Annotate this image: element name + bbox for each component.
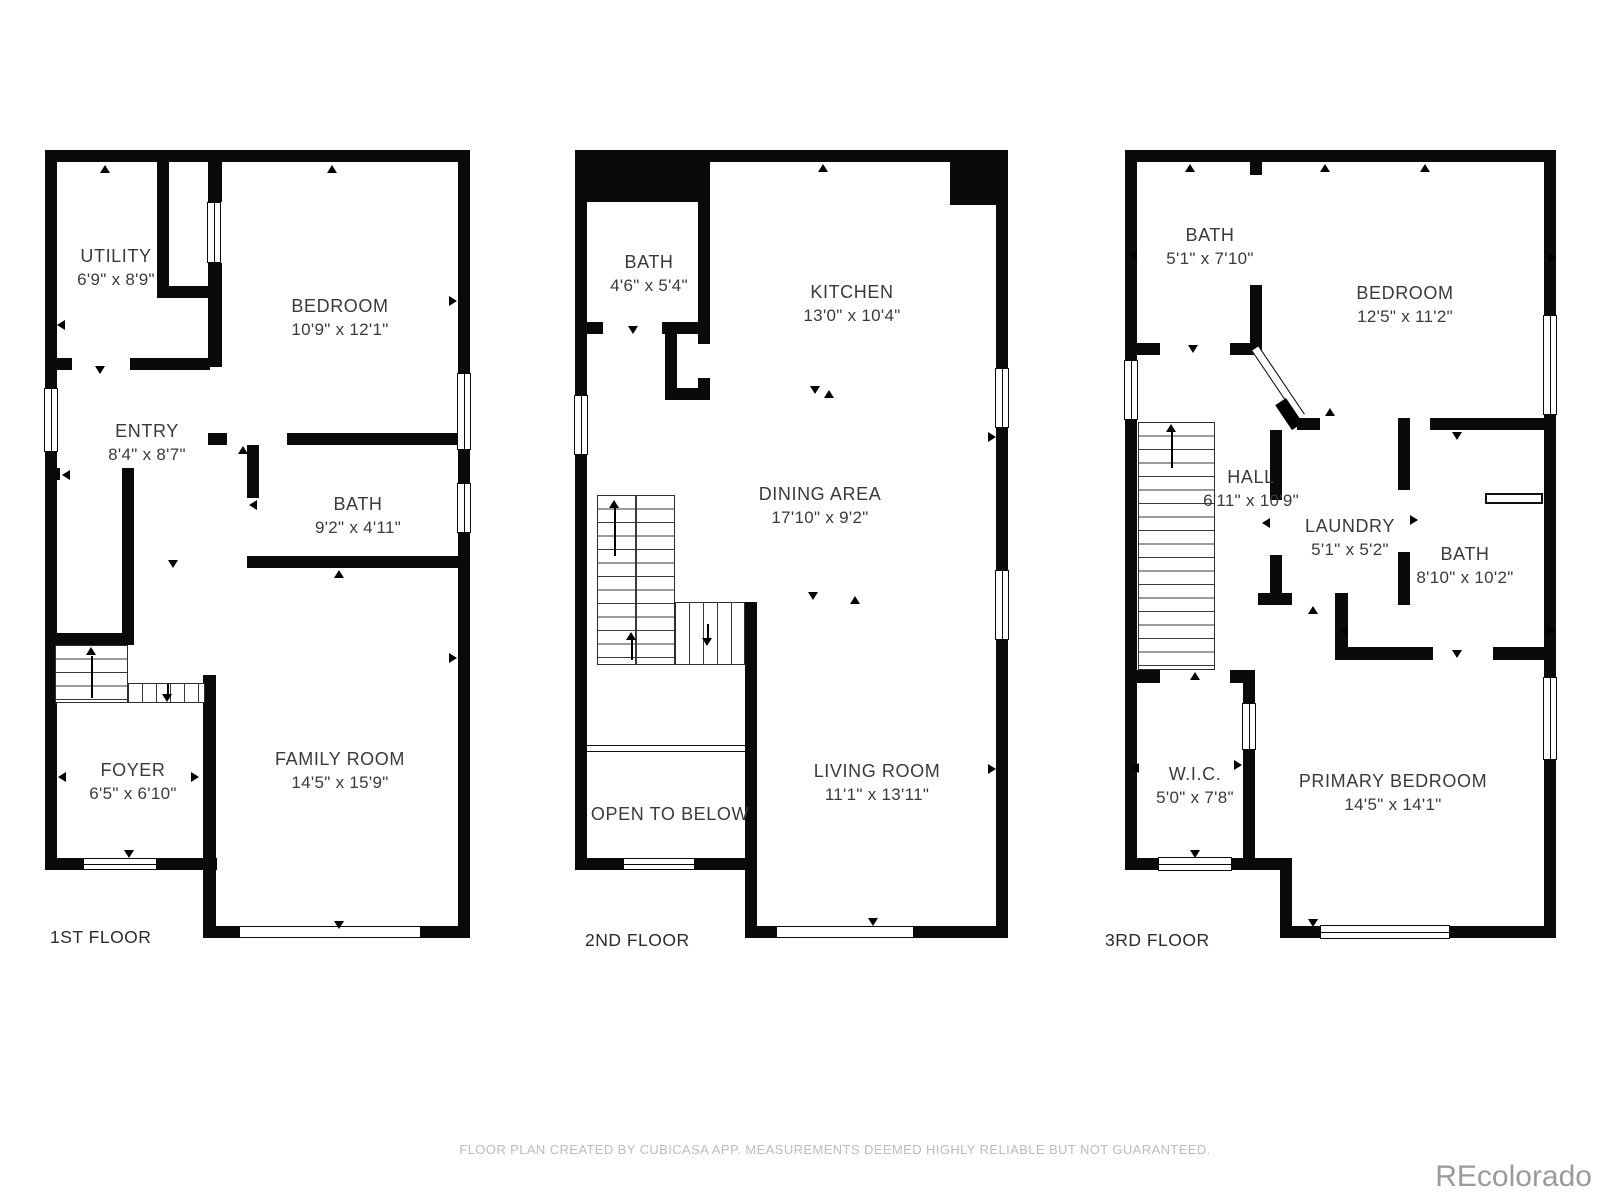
wall <box>1398 552 1410 605</box>
door-swing-icon <box>1131 763 1139 773</box>
room-name: HALL <box>1203 467 1299 488</box>
room-name: OPEN TO BELOW <box>591 804 749 825</box>
door-swing-icon <box>988 432 996 442</box>
wall <box>1398 418 1410 490</box>
door-swing-icon <box>824 390 834 398</box>
wall <box>45 358 72 370</box>
door-swing-icon <box>1410 515 1418 525</box>
room-dims: 6'9" x 8'9" <box>77 270 155 290</box>
door-swing-icon <box>58 772 66 782</box>
room-label-entry: ENTRY 8'4" x 8'7" <box>108 421 186 465</box>
wall <box>45 633 134 645</box>
room-label-living-room: LIVING ROOM 11'1" x 13'11" <box>814 761 941 805</box>
room-dims: 8'4" x 8'7" <box>108 445 186 465</box>
footer-disclaimer: FLOOR PLAN CREATED BY CUBICASA APP. MEAS… <box>0 1142 1600 1157</box>
stair-up-arrow-icon <box>609 500 619 508</box>
room-dims: 17'10" x 9'2" <box>759 508 882 528</box>
room-label-wic: W.I.C. 5'0" x 7'8" <box>1156 764 1234 808</box>
wall <box>575 162 587 395</box>
room-name: UTILITY <box>77 246 155 267</box>
window <box>457 373 471 450</box>
wall <box>698 378 710 400</box>
floor-plan-canvas: UTILITY 6'9" x 8'9" BEDROOM 10'9" x 12'1… <box>0 0 1600 1200</box>
door-swing-icon <box>850 596 860 604</box>
wall <box>1348 647 1433 660</box>
door-swing-icon <box>249 500 257 510</box>
room-dims: 14'5" x 14'1" <box>1299 795 1487 815</box>
room-name: LIVING ROOM <box>814 761 941 782</box>
wall <box>1125 858 1160 870</box>
door-swing-icon <box>1234 760 1242 770</box>
stair-arrow-shaft <box>91 656 93 698</box>
wall <box>1125 162 1137 360</box>
door-swing-icon <box>810 386 820 394</box>
wall <box>45 858 83 870</box>
door-swing-icon <box>1262 518 1270 528</box>
wall <box>745 602 757 938</box>
stair-up-arrow-icon <box>626 632 636 640</box>
wall <box>1250 285 1262 343</box>
room-name: LAUNDRY <box>1305 516 1395 537</box>
room-label-kitchen: KITCHEN 13'0" x 10'4" <box>803 282 900 326</box>
wall <box>662 322 710 334</box>
wall <box>1243 750 1255 870</box>
wall <box>745 926 777 938</box>
door-swing-icon <box>1548 253 1556 263</box>
closet-shelf <box>1485 493 1543 504</box>
wall <box>247 556 470 568</box>
window <box>457 483 471 533</box>
wall <box>208 162 222 202</box>
room-label-hall: HALL 6'11" x 10'9" <box>1203 467 1299 511</box>
stair-up-arrow-icon <box>1166 424 1176 432</box>
room-dims: 5'0" x 7'8" <box>1156 788 1234 808</box>
door-swing-icon <box>1190 850 1200 858</box>
door-swing-icon <box>1190 672 1200 680</box>
wall <box>575 455 587 870</box>
wall <box>130 358 210 370</box>
door-swing-icon <box>1188 345 1198 353</box>
wall <box>208 433 227 445</box>
wall <box>1270 555 1282 593</box>
wall <box>1250 162 1262 175</box>
door-swing-icon <box>334 570 344 578</box>
door-swing-icon <box>1547 625 1555 635</box>
room-name: KITCHEN <box>803 282 900 303</box>
door-swing-icon <box>1320 164 1330 172</box>
stair-up-arrow-icon <box>86 647 96 655</box>
room-dims: 13'0" x 10'4" <box>803 306 900 326</box>
window <box>1320 925 1450 939</box>
room-dims: 9'2" x 4'11" <box>315 518 401 538</box>
room-label-foyer: FOYER 6'5" x 6'10" <box>89 760 176 804</box>
room-name: BATH <box>610 252 688 273</box>
wall <box>208 263 222 367</box>
room-name: W.I.C. <box>1156 764 1234 785</box>
wall <box>287 433 470 445</box>
stair-arrow-shaft <box>614 508 616 556</box>
room-name: FOYER <box>89 760 176 781</box>
wall <box>575 858 623 870</box>
room-dims: 6'11" x 10'9" <box>1203 491 1299 511</box>
door-swing-icon <box>628 326 638 334</box>
window <box>1543 677 1557 760</box>
window <box>574 395 588 455</box>
window <box>623 858 695 870</box>
room-label-laundry: LAUNDRY 5'1" x 5'2" <box>1305 516 1395 560</box>
room-name: BATH <box>315 494 401 515</box>
wall <box>458 162 470 373</box>
wall <box>913 926 1008 938</box>
door-swing-icon <box>334 921 344 929</box>
door-swing-icon <box>1340 626 1348 636</box>
room-dims: 8'10" x 10'2" <box>1416 568 1513 588</box>
room-dims: 6'5" x 6'10" <box>89 784 176 804</box>
door-swing-icon <box>1308 919 1318 927</box>
door-swing-icon <box>808 592 818 600</box>
window <box>1124 360 1138 420</box>
wall <box>1125 670 1160 683</box>
wall <box>1125 150 1556 162</box>
wall <box>203 675 216 938</box>
wall <box>122 468 134 645</box>
wall <box>575 150 710 202</box>
window <box>44 388 58 452</box>
floor-label-1st: 1ST FLOOR <box>50 927 151 948</box>
wall <box>698 334 710 344</box>
room-label-bath-2: BATH 8'10" x 10'2" <box>1416 544 1513 588</box>
room-name: PRIMARY BEDROOM <box>1299 771 1487 792</box>
wall <box>1125 343 1160 355</box>
wall <box>458 533 470 938</box>
room-name: ENTRY <box>108 421 186 442</box>
door-swing-icon <box>1185 164 1195 172</box>
floor-label-2nd: 2ND FLOOR <box>585 930 690 951</box>
room-label-open-to-below: OPEN TO BELOW <box>591 804 749 825</box>
wall <box>1450 926 1556 938</box>
door-swing-icon <box>57 320 65 330</box>
room-label-bath: BATH 9'2" x 4'11" <box>315 494 401 538</box>
wall <box>996 640 1008 938</box>
window <box>1158 857 1232 871</box>
staircase-landing-icon <box>675 602 745 665</box>
room-dims: 10'9" x 12'1" <box>291 320 388 340</box>
door-swing-icon <box>868 918 878 926</box>
wall <box>458 450 470 483</box>
window <box>995 368 1009 428</box>
stair-down-arrow-icon <box>162 694 172 702</box>
door-swing-icon <box>100 165 110 173</box>
door-swing-icon <box>818 164 828 172</box>
wall <box>45 468 60 480</box>
wall <box>45 150 470 162</box>
room-label-bedroom: BEDROOM 10'9" x 12'1" <box>291 296 388 340</box>
wall <box>1544 415 1556 677</box>
wall <box>420 926 470 938</box>
door-swing-icon <box>449 653 457 663</box>
window <box>83 858 157 870</box>
room-name: BATH <box>1416 544 1513 565</box>
wall <box>698 162 710 322</box>
stair-down-arrow-icon <box>702 638 712 646</box>
door-opening <box>777 926 913 938</box>
room-name: FAMILY ROOM <box>275 749 405 770</box>
room-name: BEDROOM <box>1356 283 1453 304</box>
wall <box>575 322 603 334</box>
wall <box>247 445 259 498</box>
room-label-dining-area: DINING AREA 17'10" x 9'2" <box>759 484 882 528</box>
window <box>207 202 221 263</box>
door-swing-icon <box>1129 250 1137 260</box>
wall <box>1430 418 1556 430</box>
room-label-utility: UTILITY 6'9" x 8'9" <box>77 246 155 290</box>
door-opening <box>240 926 420 938</box>
room-name: DINING AREA <box>759 484 882 505</box>
wall <box>1493 647 1556 660</box>
staircase-icon <box>1138 422 1215 670</box>
room-dims: 14'5" x 15'9" <box>275 773 405 793</box>
wall <box>1280 926 1320 938</box>
wall <box>1125 420 1137 870</box>
door-swing-icon <box>1308 606 1318 614</box>
room-dims: 11'1" x 13'11" <box>814 785 941 805</box>
room-label-bath: BATH 5'1" x 7'10" <box>1166 225 1253 269</box>
room-dims: 4'6" x 5'4" <box>610 276 688 296</box>
window <box>995 570 1009 640</box>
room-name: BATH <box>1166 225 1253 246</box>
window <box>1543 315 1557 415</box>
door-swing-icon <box>1452 650 1462 658</box>
wall <box>1544 760 1556 938</box>
door-swing-icon <box>449 296 457 306</box>
room-label-primary-bedroom: PRIMARY BEDROOM 14'5" x 14'1" <box>1299 771 1487 815</box>
room-dims: 12'5" x 11'2" <box>1356 307 1453 327</box>
wall <box>996 162 1008 368</box>
door-swing-icon <box>238 446 248 454</box>
room-dims: 5'1" x 7'10" <box>1166 249 1253 269</box>
room-dims: 5'1" x 5'2" <box>1305 540 1395 560</box>
room-label-bath: BATH 4'6" x 5'4" <box>610 252 688 296</box>
wall <box>1243 670 1255 703</box>
room-label-family-room: FAMILY ROOM 14'5" x 15'9" <box>275 749 405 793</box>
door-swing-icon <box>191 772 199 782</box>
wall <box>1258 593 1292 605</box>
door-swing-icon <box>124 850 134 858</box>
door-swing-icon <box>168 560 178 568</box>
door-swing-icon <box>1325 408 1335 416</box>
door-swing-icon <box>1420 164 1430 172</box>
door-swing-icon <box>95 366 105 374</box>
floor-label-3rd: 3RD FLOOR <box>1105 930 1210 951</box>
open-to-below-edge <box>587 745 745 752</box>
door-swing-icon <box>62 470 70 480</box>
door-swing-icon <box>988 764 996 774</box>
door-swing-icon <box>1452 432 1462 440</box>
recolorado-watermark: REcolorado <box>1435 1160 1592 1194</box>
window <box>1242 703 1256 750</box>
wall <box>45 162 57 388</box>
room-label-bedroom: BEDROOM 12'5" x 11'2" <box>1356 283 1453 327</box>
room-name: BEDROOM <box>291 296 388 317</box>
stair-arrow-shaft <box>631 640 633 660</box>
wall <box>1544 162 1556 315</box>
wall <box>996 428 1008 570</box>
door-swing-icon <box>327 165 337 173</box>
wall <box>157 150 169 297</box>
stair-arrow-shaft <box>1171 432 1173 468</box>
